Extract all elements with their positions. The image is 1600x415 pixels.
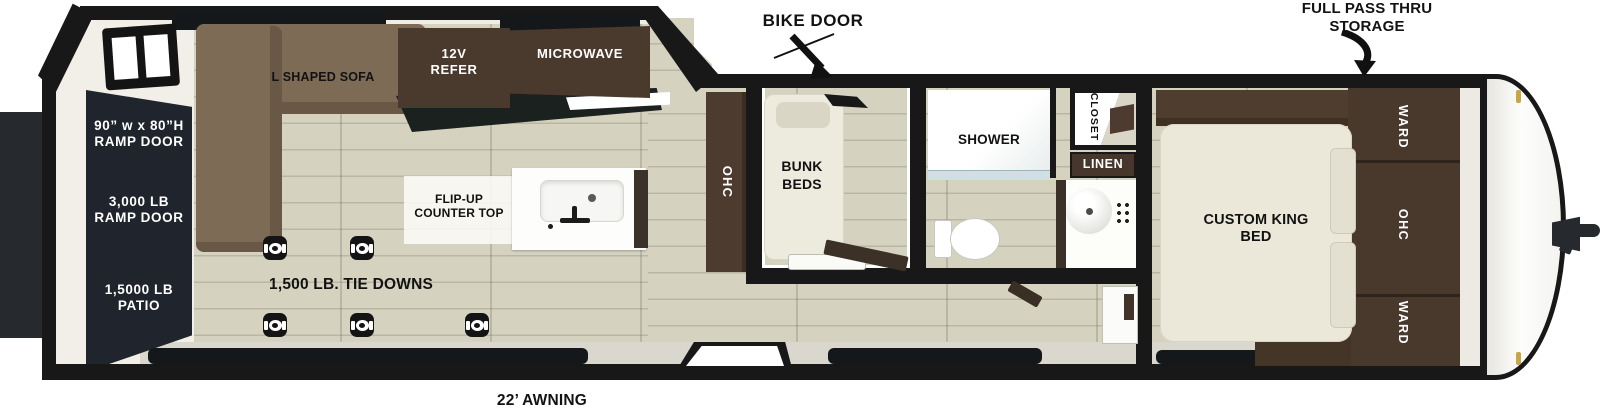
hitch-arm <box>1576 224 1600 237</box>
sink-soap <box>548 224 553 229</box>
ramp-door-weight-label: 3,000 LB RAMP DOOR <box>86 194 192 226</box>
bed-head-shelf <box>1156 90 1352 126</box>
tie-down-icon <box>350 313 374 337</box>
ward-top-label: WARD <box>1394 82 1410 172</box>
vanity-edge <box>1056 180 1066 270</box>
flip-up-counter-label: FLIP-UP COUNTER TOP <box>404 192 514 221</box>
flip-up-counter: FLIP-UP COUNTER TOP <box>404 176 514 244</box>
tie-downs-label: 1,500 LB. TIE DOWNS <box>246 276 456 295</box>
sink-drain <box>588 194 596 202</box>
toilet-bowl <box>950 218 1000 260</box>
tie-down-icon <box>465 313 489 337</box>
tie-down-icon <box>350 236 374 260</box>
tie-down-icon <box>263 236 287 260</box>
bed-pillow-2 <box>1330 242 1356 328</box>
bath-bottom-wall <box>910 268 1152 284</box>
vanity-sink-drain <box>1086 208 1093 215</box>
cap-hinge-top <box>1516 90 1521 103</box>
bedroom-door-edge <box>1124 294 1134 320</box>
floorplan: 90” w x 80”H RAMP DOOR 3,000 LB RAMP DOO… <box>0 0 1600 415</box>
linen-label: LINEN <box>1072 157 1134 172</box>
island-edge <box>634 170 648 248</box>
bunk-right-wall <box>910 88 926 284</box>
ward-bottom-label: WARD <box>1394 278 1410 368</box>
tie-down-icon <box>263 313 287 337</box>
left-wall <box>42 74 56 374</box>
rear-window <box>102 23 180 90</box>
microwave: MICROWAVE <box>510 26 650 98</box>
patio-deck <box>0 112 44 338</box>
bottom-window-mid <box>828 348 1042 364</box>
bunk-beds-label: BUNK BEDS <box>742 158 862 193</box>
sink-faucet-spout <box>572 206 577 222</box>
entry-door <box>678 342 792 368</box>
closet-label: CLOSET <box>1086 87 1100 147</box>
cap-hinge-bottom <box>1516 352 1521 365</box>
bedroom-wall <box>1136 74 1152 366</box>
ramp-door-size-label: 90” w x 80”H RAMP DOOR <box>86 118 192 150</box>
king-bed: CUSTOM KING BED <box>1160 124 1352 342</box>
bed-pillow-1 <box>1330 148 1356 234</box>
bottom-window-garage <box>148 348 588 364</box>
sofa-label: L SHAPED SOFA <box>238 70 408 85</box>
bike-door-arrow-icon <box>772 28 862 84</box>
cabinet-wall-gap <box>1460 88 1480 366</box>
microwave-label: MICROWAVE <box>510 46 650 62</box>
galley-ohc-label: OHC <box>719 137 735 227</box>
storage-arrow-icon <box>1334 30 1388 78</box>
awning-label: 22’ AWNING <box>462 392 622 411</box>
shower-label: SHOWER <box>930 132 1048 148</box>
ramp-door: 90” w x 80”H RAMP DOOR 3,000 LB RAMP DOO… <box>86 90 192 372</box>
bunk-pillow <box>776 102 830 128</box>
king-bed-label: CUSTOM KING BED <box>1160 212 1352 247</box>
linen-cabinet: LINEN <box>1070 152 1136 178</box>
closet-shelf <box>1110 104 1134 134</box>
shower-glass <box>928 170 1050 180</box>
shower-side-wall <box>1050 88 1056 178</box>
patio-label: 1,5000 LB PATIO <box>86 282 192 314</box>
kitchen-sink <box>540 180 624 222</box>
refrigerator: 12V REFER <box>398 28 510 108</box>
refer-label: 12V REFER <box>398 46 510 77</box>
vanity-faucet-dots <box>1116 202 1130 224</box>
sofa-chaise <box>196 26 282 252</box>
bedroom-ohc-label: OHC <box>1394 180 1410 270</box>
